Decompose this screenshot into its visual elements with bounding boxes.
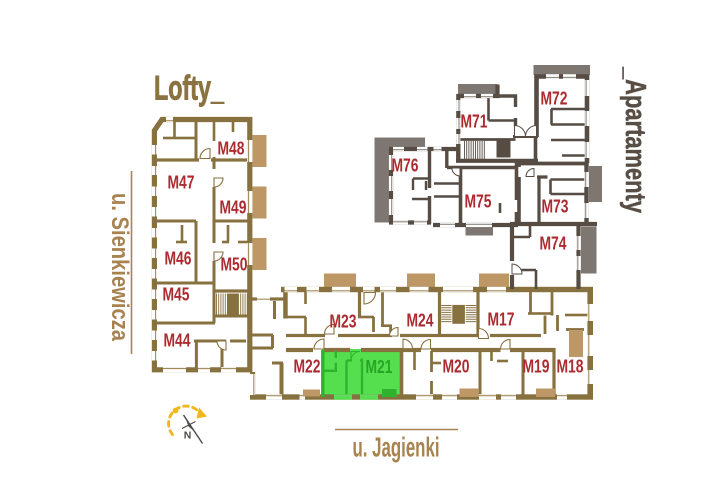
svg-text:M46: M46: [165, 249, 192, 269]
svg-text:M76: M76: [392, 156, 419, 176]
svg-text:M23: M23: [330, 312, 357, 332]
svg-text:M45: M45: [163, 285, 190, 305]
svg-text:M17: M17: [488, 310, 515, 330]
svg-text:M75: M75: [465, 192, 492, 212]
svg-text:M47: M47: [168, 173, 195, 193]
svg-text:M73: M73: [542, 197, 569, 217]
svg-text:M22: M22: [294, 357, 321, 377]
svg-text:Lofty_: Lofty_: [154, 70, 225, 108]
svg-text:M71: M71: [461, 112, 488, 132]
svg-text:_Apartamenty: _Apartamenty: [619, 66, 651, 213]
svg-text:M49: M49: [220, 198, 247, 218]
svg-text:M24: M24: [407, 311, 434, 331]
svg-text:M18: M18: [557, 357, 584, 377]
svg-text:M21: M21: [366, 357, 393, 377]
svg-text:M20: M20: [443, 357, 470, 377]
svg-text:u. Sienkiewicza: u. Sienkiewicza: [106, 193, 133, 342]
svg-text:M48: M48: [218, 139, 245, 159]
svg-text:N: N: [184, 430, 192, 442]
svg-text:M19: M19: [523, 357, 550, 377]
svg-text:M72: M72: [541, 89, 568, 109]
svg-text:M50: M50: [221, 255, 248, 275]
svg-text:M44: M44: [164, 331, 191, 351]
svg-text:u. Jagienki: u. Jagienki: [353, 432, 440, 463]
svg-text:M74: M74: [540, 234, 567, 254]
